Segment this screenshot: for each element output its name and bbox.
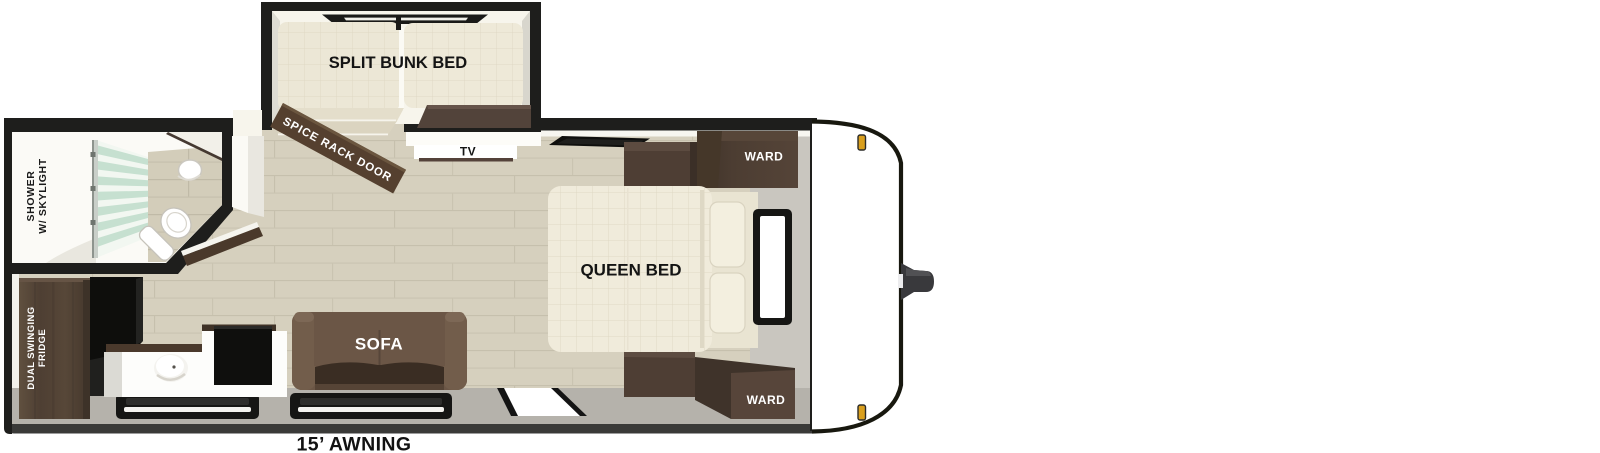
svg-text:FRIDGE: FRIDGE bbox=[37, 329, 48, 367]
svg-text:SPLIT BUNK BED: SPLIT BUNK BED bbox=[329, 54, 468, 72]
svg-text:DUAL SWINGING: DUAL SWINGING bbox=[26, 306, 37, 389]
svg-text:SHOWER: SHOWER bbox=[25, 171, 37, 222]
svg-text:SOFA: SOFA bbox=[355, 335, 403, 354]
svg-text:W/ SKYLIGHT: W/ SKYLIGHT bbox=[37, 158, 49, 233]
svg-text:TV: TV bbox=[460, 145, 476, 159]
svg-text:QUEEN BED: QUEEN BED bbox=[580, 261, 681, 280]
svg-text:15’ AWNING: 15’ AWNING bbox=[297, 434, 412, 453]
svg-text:WARD: WARD bbox=[747, 393, 786, 407]
svg-text:WARD: WARD bbox=[745, 150, 784, 164]
